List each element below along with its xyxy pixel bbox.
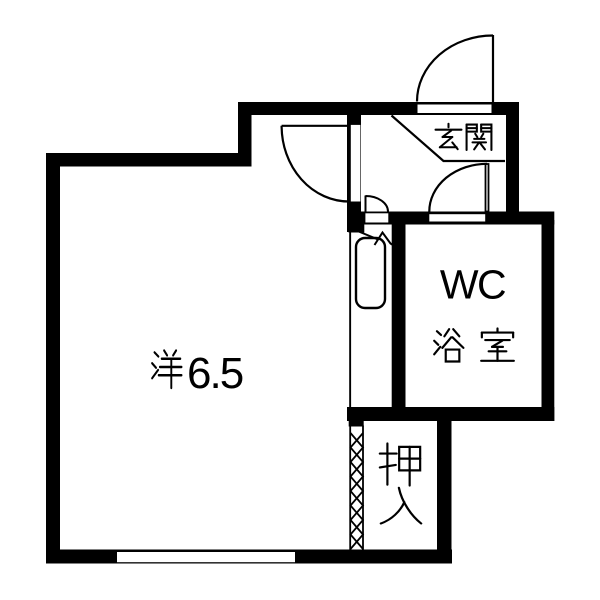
svg-text:6.5: 6.5: [187, 349, 243, 398]
svg-text:WC: WC: [440, 262, 506, 308]
